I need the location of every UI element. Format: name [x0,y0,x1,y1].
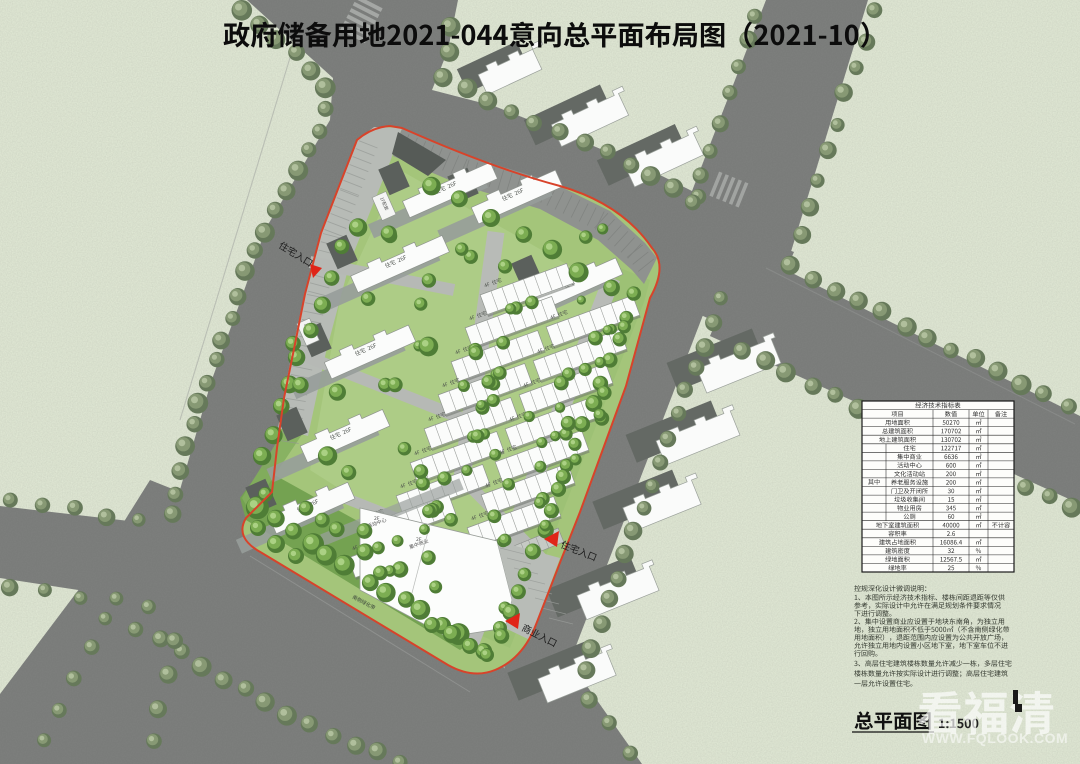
svg-text:WWW.FQLOOK.COM: WWW.FQLOOK.COM [922,730,1068,746]
